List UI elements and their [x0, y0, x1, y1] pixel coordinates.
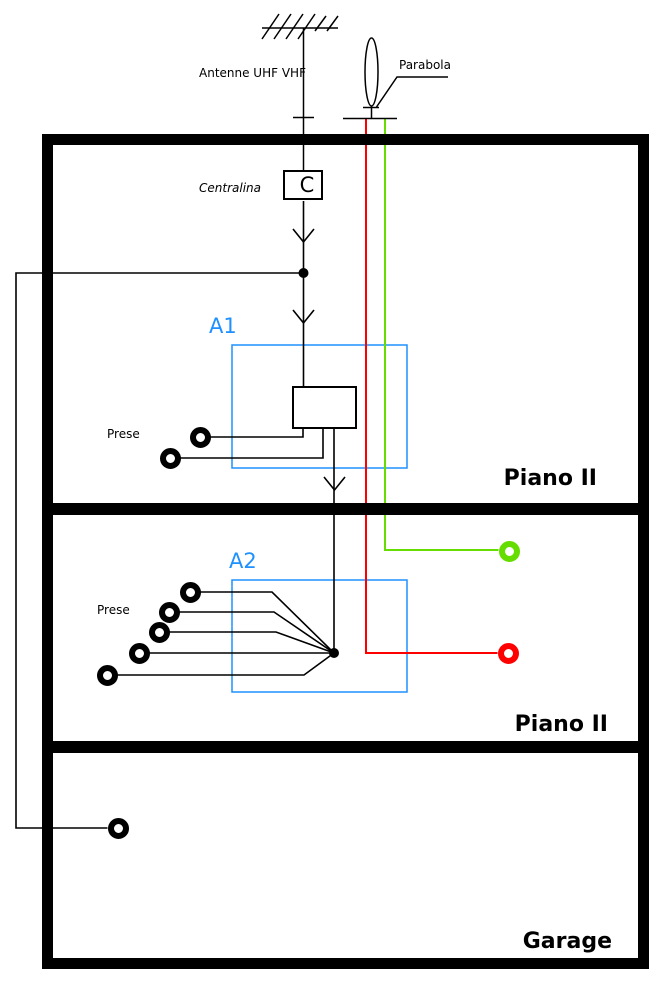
outlet-a2-4 — [129, 643, 150, 664]
outlet-garage — [108, 818, 129, 839]
floor-label-piano2-mid: Piano II — [450, 714, 608, 736]
floor-label-piano2-top: Piano II — [450, 468, 597, 490]
centralina-box: C — [283, 170, 323, 200]
outlet-a1-1 — [190, 427, 211, 448]
outlet-a2-1 — [180, 582, 201, 603]
antenna-label: Antenne UHF VHF — [199, 67, 306, 79]
parabola-label: Parabola — [399, 59, 451, 71]
outlet-a2-3 — [149, 622, 170, 643]
outlet-sat-red — [498, 643, 519, 664]
outlet-a2-5 — [97, 665, 118, 686]
building-outline — [42, 134, 649, 969]
centralina-label: Centralina — [199, 182, 261, 194]
prese-a2-label: Prese — [97, 604, 130, 616]
centralina-box-letter: C — [300, 173, 315, 197]
floor-divider-2 — [53, 741, 638, 753]
outlet-a2-2 — [159, 602, 180, 623]
amplifier-a2-label: A2 — [229, 551, 257, 572]
tv-distribution-wiring-diagram: C Antenne UHF VHF Parabola Centralina A1… — [0, 0, 663, 983]
outlet-sat-green — [499, 541, 520, 562]
amplifier-a1-label: A1 — [209, 316, 237, 337]
floor-divider-1 — [53, 503, 638, 515]
prese-a1-label: Prese — [107, 428, 140, 440]
outlet-a1-2 — [160, 448, 181, 469]
floor-label-garage: Garage — [450, 931, 612, 953]
